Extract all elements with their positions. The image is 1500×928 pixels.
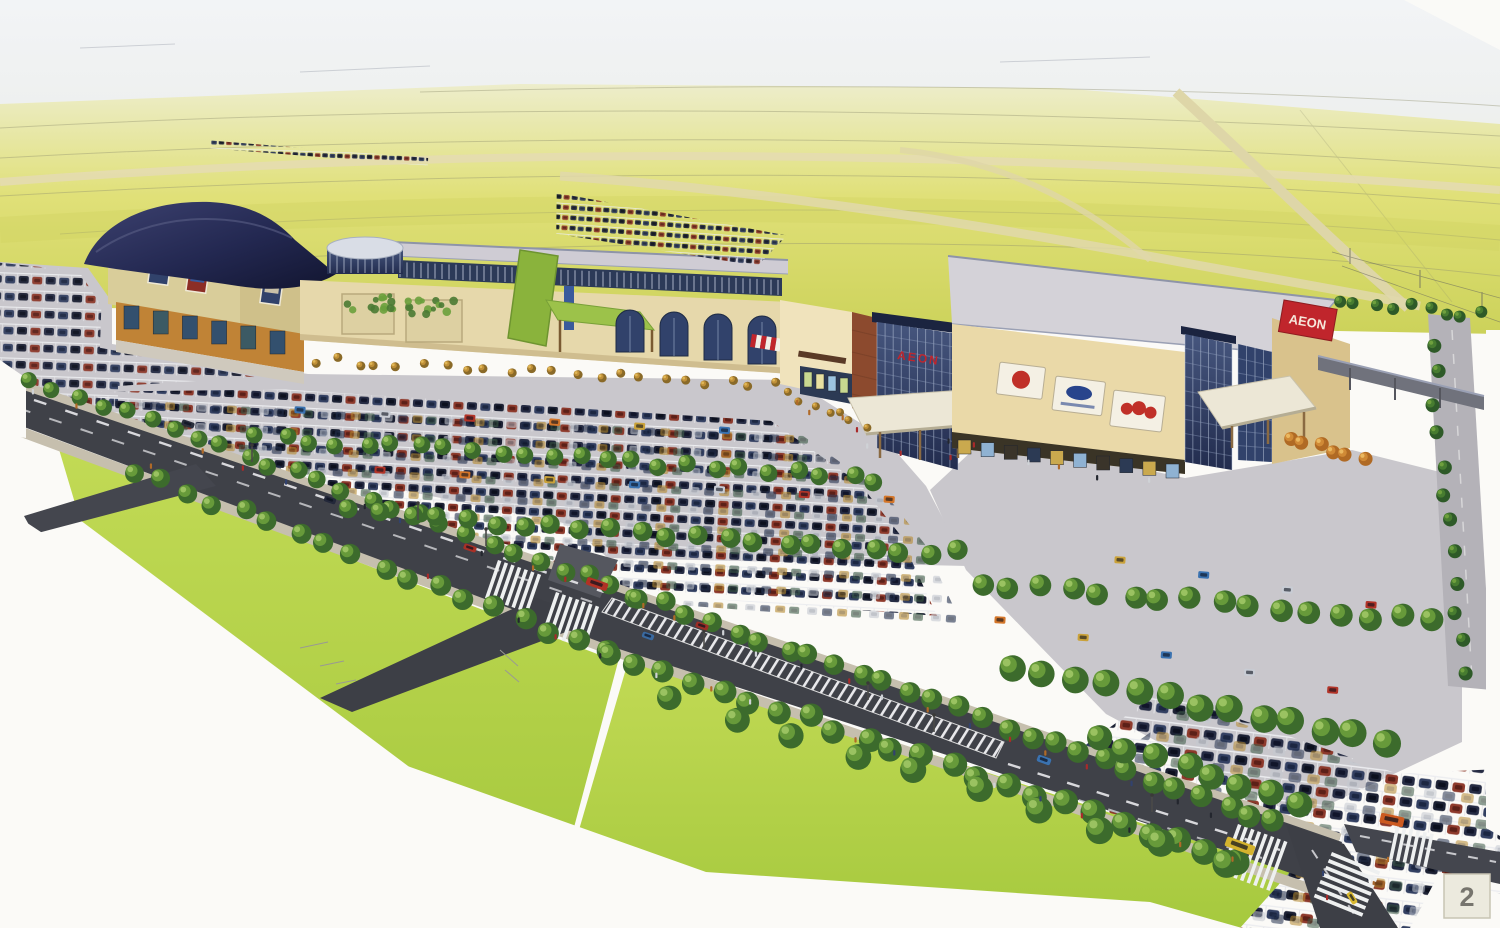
parked-car <box>294 406 305 414</box>
pedestrian <box>722 630 724 636</box>
pedestrian <box>364 504 366 510</box>
pedestrian <box>1387 857 1389 863</box>
pedestrian <box>1039 796 1041 802</box>
pedestrian <box>1009 737 1011 743</box>
pedestrian <box>399 518 401 524</box>
pedestrian <box>927 707 929 713</box>
pedestrian <box>242 465 244 471</box>
pedestrian <box>749 699 751 705</box>
pedestrian <box>1177 799 1179 805</box>
parked-car <box>1282 586 1293 594</box>
pedestrian <box>881 694 883 700</box>
pedestrian <box>848 678 850 684</box>
pedestrian <box>1322 871 1324 877</box>
pedestrian <box>1148 477 1150 483</box>
parked-car <box>629 481 640 489</box>
tenant-sign-3 <box>1110 390 1166 432</box>
parked-car <box>994 616 1005 624</box>
pedestrian <box>710 686 712 692</box>
pedestrian <box>755 651 757 657</box>
tenant-sign-2 <box>1052 376 1106 416</box>
pedestrian <box>554 634 556 640</box>
parked-car <box>1244 669 1255 677</box>
parked-car <box>544 476 555 484</box>
pedestrian <box>993 783 995 789</box>
parked-car <box>883 495 894 503</box>
pedestrian <box>800 664 802 670</box>
parked-car <box>1365 601 1376 609</box>
architectural-rendering-page: CINEMAS <box>0 0 1500 928</box>
pedestrian <box>1086 764 1088 770</box>
pedestrian <box>796 399 798 405</box>
pedestrian <box>854 737 856 743</box>
parked-car <box>549 418 560 426</box>
parked-car <box>1327 686 1338 694</box>
parked-car <box>634 422 645 430</box>
pedestrian <box>32 389 34 395</box>
pedestrian <box>973 442 975 448</box>
pedestrian <box>1326 895 1328 901</box>
pedestrian <box>481 551 483 557</box>
parked-car <box>1161 651 1172 659</box>
parked-car <box>1077 634 1088 642</box>
pedestrian <box>900 451 902 457</box>
pedestrian <box>150 463 152 469</box>
pedestrian <box>808 410 810 416</box>
pedestrian <box>866 443 868 449</box>
pedestrian <box>1081 813 1083 819</box>
pedestrian <box>842 415 844 421</box>
pedestrian <box>642 603 644 609</box>
pedestrian <box>655 673 657 679</box>
pedestrian <box>948 438 950 444</box>
glass-drum-rotunda <box>327 237 403 274</box>
page-number-badge: 2 <box>1444 874 1490 918</box>
pedestrian <box>1058 464 1060 470</box>
parked-car <box>714 486 725 494</box>
pedestrian <box>1044 750 1046 756</box>
parked-car <box>459 471 470 479</box>
pedestrian <box>1130 781 1132 787</box>
pedestrian <box>673 615 675 621</box>
pedestrian <box>1027 460 1029 466</box>
parked-car <box>379 410 390 418</box>
pedestrian <box>75 403 77 409</box>
parked-car <box>799 491 810 499</box>
pedestrian <box>1179 842 1181 848</box>
pedestrian <box>427 573 429 579</box>
parked-car <box>464 414 475 422</box>
parked-car <box>719 426 730 434</box>
pedestrian <box>1128 827 1130 833</box>
page-number: 2 <box>1459 882 1474 912</box>
parked-car <box>374 466 385 474</box>
mall-aerial-rendering: CINEMAS <box>0 0 1500 928</box>
parked-car <box>1114 556 1125 564</box>
pedestrian <box>856 427 858 433</box>
pedestrian <box>1231 856 1233 862</box>
pedestrian <box>202 448 204 454</box>
pedestrian <box>285 479 287 485</box>
pedestrian <box>1096 475 1098 481</box>
parked-car <box>1198 571 1209 579</box>
pedestrian <box>949 455 951 461</box>
pedestrian <box>1210 812 1212 818</box>
pedestrian <box>564 577 566 583</box>
pedestrian <box>893 750 895 756</box>
pedestrian <box>518 617 520 623</box>
tenant-sign-1 <box>996 362 1046 399</box>
pedestrian <box>532 565 534 571</box>
pedestrian <box>969 723 971 729</box>
pedestrian <box>599 653 601 659</box>
